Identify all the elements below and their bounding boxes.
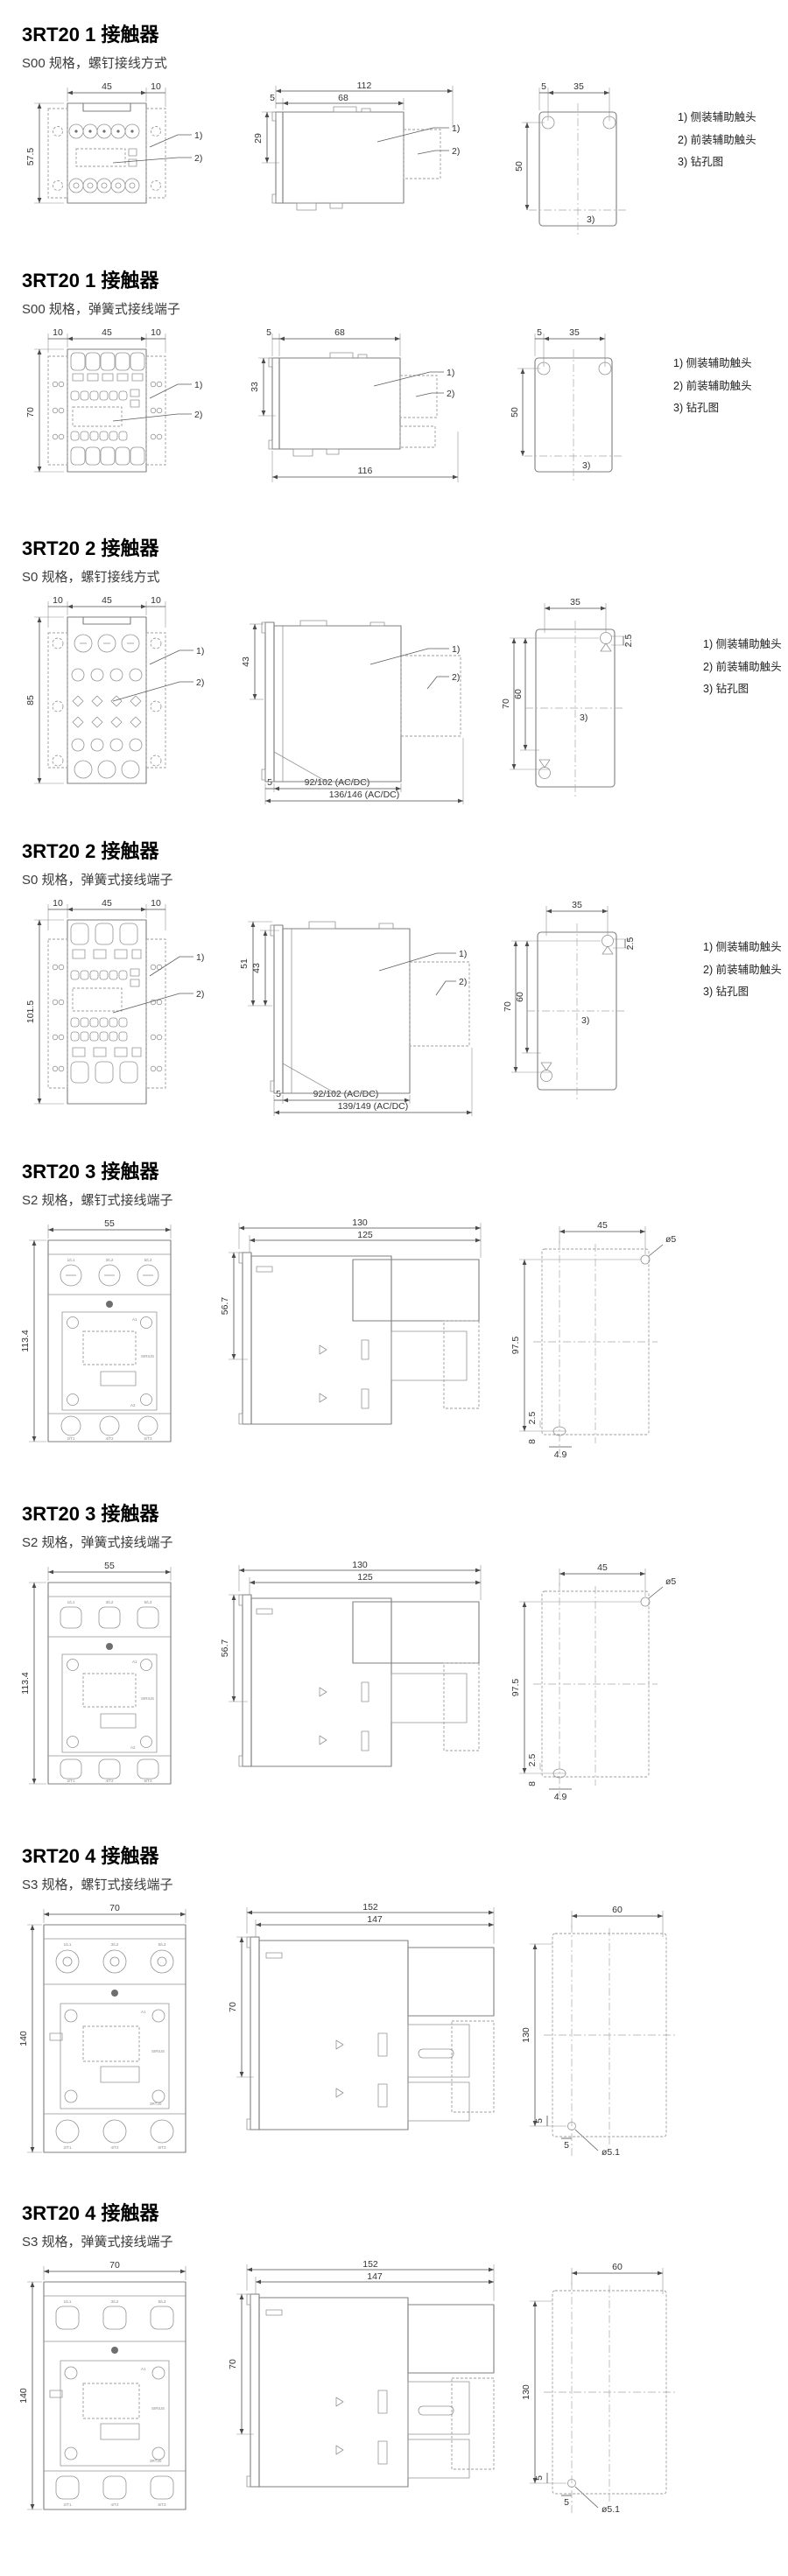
front-view-drawing: 10 45 10 85 1) <box>22 594 223 809</box>
terminal-label-5l3: 5/L3 <box>144 1258 152 1262</box>
front-dimensions: 45 10 57.5 <box>25 81 165 203</box>
front-body: 1/L1 3/L2 5/L3 A1 SIRIUS 3RT20 2/T1 4/T2… <box>44 2282 186 2509</box>
terminal-label-5l3: 5/L3 <box>158 2299 166 2304</box>
dim-drill-w: 45 <box>597 1562 608 1573</box>
front-body: 1/L1 3/L2 5/L3 A1 SIRIUS 3RT20 2/T1 4/T2… <box>44 1925 186 2152</box>
dim-side-h2: 43 <box>251 963 262 973</box>
dim-side-h: 70 <box>228 2002 238 2012</box>
drawings-row: 45 10 57.5 1) 2) <box>22 81 788 242</box>
dim-front-h: 140 <box>18 2031 29 2046</box>
drill-plate <box>544 2282 675 2513</box>
callout-1: 1) <box>452 644 460 655</box>
brand-label: SIRIUS <box>151 2406 165 2411</box>
dim-side-total: 112 <box>357 81 372 91</box>
terminal-label-3l2: 3/L2 <box>106 1258 114 1262</box>
section-title: 3RT20 4 接触器 <box>22 1841 788 1869</box>
front-view-drawing: 10 45 10 101.5 <box>22 897 223 1134</box>
terminal-label-2t1: 2/T1 <box>63 2502 72 2507</box>
terminal-label-3l2: 3/L2 <box>111 2299 119 2304</box>
dim-front-h: 113.4 <box>20 1330 31 1352</box>
brand-label: SIRIUS <box>151 2049 165 2053</box>
terminal-label-6t3: 6/T3 <box>158 2145 166 2150</box>
note-3: 3) 钻孔图 <box>673 397 752 420</box>
dim-drill-h: 50 <box>510 407 520 418</box>
side-view-drawing: 51 43 5 92/102 (AC/DC) 139/149 (AC/DC) <box>237 897 496 1132</box>
drill-dimensions: 35 2.5 70 60 <box>503 900 636 1072</box>
dim-drill-h2: 60 <box>515 992 525 1002</box>
dim-drill-w: 45 <box>597 1220 608 1231</box>
model-label: 3RT20 <box>150 2459 162 2463</box>
side-view-drawing: 43 5 92/102 (AC/DC) 136/146 (AC/DC) 1) <box>239 594 489 813</box>
terminal-label-a2: A2 <box>130 1745 136 1750</box>
legend-notes: 1) 侧装辅助触头 2) 前装辅助触头 3) 钻孔图 <box>703 634 782 701</box>
dim-side-h: 56.7 <box>220 1297 230 1316</box>
callout-1: 1) <box>459 949 467 959</box>
section-subtitle: S0 规格，螺钉接线方式 <box>22 567 788 586</box>
legend-notes: 1) 侧装辅助触头 2) 前装辅助触头 3) 钻孔图 <box>678 107 756 174</box>
dim-drill-h: 50 <box>514 161 524 172</box>
drill-plate <box>524 349 623 482</box>
terminal-label-3l2: 3/L2 <box>106 1600 114 1604</box>
callout-3: 3) <box>580 712 587 723</box>
side-callouts: 1) 2) <box>374 368 454 399</box>
dim-side-d2: 139/149 (AC/DC) <box>338 1101 409 1112</box>
drill-pattern-drawing: 60 130 5 5 ø5.1 <box>521 1902 722 2175</box>
callout-1: 1) <box>196 646 204 656</box>
front-body <box>48 920 165 1104</box>
drill-plate <box>527 923 627 1100</box>
section-3rt203-spring: 3RT20 3 接触器 S2 规格，弹簧式接线端子 55 113.4 1/L1 … <box>0 1485 788 1827</box>
terminal-label-1l1: 1/L1 <box>67 1600 75 1604</box>
drill-plate <box>544 1925 675 2156</box>
side-dimensions: 130 125 56.7 <box>220 1560 481 1702</box>
dim-side-body: 68 <box>334 327 345 338</box>
side-body <box>269 353 437 456</box>
drawings-row: 70 140 1/L1 3/L2 5/L3 A1 <box>22 1902 788 2175</box>
drill-pattern-drawing: 5 35 50 3) <box>513 81 662 242</box>
side-view-drawing: 130 125 56.7 <box>222 1218 493 1476</box>
drill-dimensions: 60 130 5 5 ø5.1 <box>521 1905 663 2158</box>
datasheet-page: 3RT20 1 接触器 S00 规格，螺钉接线方式 45 10 57.5 <box>0 0 788 2576</box>
dim-drill-o3: 4.9 <box>554 1792 567 1802</box>
dim-side-h1: 51 <box>239 958 250 969</box>
callout-1: 1) <box>452 123 460 134</box>
dim-side-body: 125 <box>357 1230 373 1240</box>
dim-side-off: 5 <box>276 1089 281 1099</box>
front-body: 1/L1 3/L2 5/L3 A1 SIRIUS A2 2/T1 4/T2 6/… <box>48 1240 171 1442</box>
callout-1: 1) <box>194 130 202 141</box>
dim-side-total: 130 <box>352 1560 368 1570</box>
legend-notes: 1) 侧装辅助触头 2) 前装辅助触头 3) 钻孔图 <box>703 937 782 1004</box>
dim-side-d1: 92/102 (AC/DC) <box>313 1089 379 1099</box>
dim-drill-hole: ø5.1 <box>602 2147 620 2158</box>
front-view-drawing: 10 45 10 70 1) <box>22 326 223 510</box>
terminal-label-a1: A1 <box>141 2010 146 2014</box>
dim-drill-w: 35 <box>573 81 584 92</box>
dim-front-w: 45 <box>102 898 112 909</box>
section-subtitle: S2 规格，螺钉式接线端子 <box>22 1190 788 1209</box>
terminal-label-1l1: 1/L1 <box>67 1258 75 1262</box>
section-title: 3RT20 2 接触器 <box>22 533 788 561</box>
side-dimensions: 152 147 70 <box>228 2259 494 2434</box>
drawings-row: 10 45 10 85 1) <box>22 594 788 813</box>
terminal-label-4t2: 4/T2 <box>105 1436 114 1441</box>
dim-front-h: 101.5 <box>25 1000 36 1023</box>
dim-front-wr: 10 <box>151 898 161 909</box>
note-1: 1) 侧装辅助触头 <box>673 353 752 376</box>
dim-front-wr: 10 <box>151 327 161 338</box>
note-1: 1) 侧装辅助触头 <box>703 634 782 656</box>
terminal-label-4t2: 4/T2 <box>110 2502 119 2507</box>
section-subtitle: S00 规格，螺钉接线方式 <box>22 53 788 72</box>
dim-side-body: 125 <box>357 1572 373 1583</box>
dim-front-wr: 10 <box>151 595 161 606</box>
dim-front-w: 55 <box>104 1218 115 1229</box>
callout-1: 1) <box>196 952 204 963</box>
section-subtitle: S3 规格，弹簧式接线端子 <box>22 2232 788 2250</box>
dim-drill-off: 5 <box>541 81 546 92</box>
drill-pattern-drawing: 5 35 50 3) <box>509 326 658 488</box>
terminal-label-4t2: 4/T2 <box>110 2145 119 2150</box>
note-2: 2) 前装辅助触头 <box>703 959 782 982</box>
dim-front-w: 45 <box>102 327 112 338</box>
section-title: 3RT20 1 接触器 <box>22 19 788 47</box>
section-3rt203-screw: 3RT20 3 接触器 S2 规格，螺钉式接线端子 55 113.4 1/L1 … <box>0 1142 788 1485</box>
dim-drill-o3: 4.9 <box>554 1449 567 1460</box>
side-view-drawing: 152 147 70 <box>231 1902 507 2175</box>
callout-2: 2) <box>452 672 460 683</box>
dim-drill-h: 130 <box>521 2384 531 2400</box>
section-subtitle: S2 规格，弹簧式接线端子 <box>22 1533 788 1551</box>
dim-drill-off: 5 <box>537 327 542 338</box>
dim-drill-w: 60 <box>612 2262 623 2272</box>
dim-drill-hole: ø5 <box>665 1234 676 1245</box>
drill-plate <box>533 1583 658 1796</box>
section-title: 3RT20 4 接触器 <box>22 2198 788 2226</box>
dim-drill-o2: 5 <box>564 2497 569 2508</box>
section-subtitle: S0 规格，弹簧式接线端子 <box>22 870 788 888</box>
drill-dimensions: 35 2.5 70 60 <box>501 597 634 769</box>
drill-pattern-drawing: 60 130 5 5 ø5.1 <box>521 2259 722 2532</box>
front-callouts: 1) 2) <box>113 646 204 701</box>
drill-plate <box>533 1240 658 1454</box>
drill-dimensions: 45 ø5 97.5 2.5 8 4.9 <box>510 1220 676 1460</box>
dim-side-total: 152 <box>362 2259 378 2270</box>
callout-1: 1) <box>194 380 202 390</box>
model-label: 3RT20 <box>150 2102 162 2106</box>
dim-side-d2: 136/146 (AC/DC) <box>329 790 400 800</box>
dim-front-w: 70 <box>109 1903 120 1913</box>
brand-label: SIRIUS <box>141 1696 154 1701</box>
dim-drill-o1: 5 <box>534 2475 545 2481</box>
drill-dimensions: 5 35 50 <box>510 327 605 456</box>
drawings-row: 10 45 10 101.5 <box>22 897 788 1134</box>
drill-plate <box>529 103 627 236</box>
dim-side-total: 152 <box>362 1902 378 1913</box>
drill-pattern-drawing: 45 ø5 97.5 2.5 8 4.9 <box>510 1560 716 1818</box>
front-body: 1/L1 3/L2 5/L3 A1 SIRIUS A2 2/T1 4/T2 6/… <box>48 1583 171 1784</box>
dim-side-total: 116 <box>358 466 373 476</box>
terminal-label-1l1: 1/L1 <box>64 1942 72 1947</box>
drill-plate <box>525 621 625 797</box>
callout-2: 2) <box>459 977 467 987</box>
section-subtitle: S00 规格，弹簧式接线端子 <box>22 299 788 318</box>
dim-drill-h: 97.5 <box>510 1337 521 1355</box>
dim-drill-o1: 2.5 <box>527 1412 538 1425</box>
dim-drill-o2: 5 <box>564 2140 569 2151</box>
front-view-drawing: 55 113.4 1/L1 3/L2 5/L3 A1 SIR <box>22 1218 197 1476</box>
note-1: 1) 侧装辅助触头 <box>703 937 782 959</box>
side-callouts: 1) 2) <box>377 123 460 157</box>
note-2: 2) 前装辅助触头 <box>703 656 782 679</box>
side-dimensions: 5 68 33 116 <box>250 327 458 482</box>
dim-drill-hole: ø5.1 <box>602 2504 620 2515</box>
dim-drill-off: 2.5 <box>625 937 636 951</box>
dim-drill-o1: 5 <box>534 2118 545 2123</box>
terminal-label-2t1: 2/T1 <box>67 1779 75 1783</box>
terminal-label-a1: A1 <box>132 1317 137 1322</box>
note-2: 2) 前装辅助触头 <box>673 376 752 398</box>
dim-side-total: 130 <box>352 1218 368 1228</box>
dim-side-body: 147 <box>367 2271 383 2282</box>
callout-2: 2) <box>447 389 454 399</box>
dim-side-h: 43 <box>241 656 251 667</box>
dim-front-h: 57.5 <box>25 148 36 166</box>
dim-drill-h1: 70 <box>501 698 511 709</box>
front-view-drawing: 45 10 57.5 1) 2) <box>22 81 223 242</box>
terminal-label-5l3: 5/L3 <box>158 1942 166 1947</box>
terminal-label-6t3: 6/T3 <box>158 2502 166 2507</box>
dim-drill-h1: 70 <box>503 1001 513 1012</box>
front-dimensions: 55 113.4 <box>20 1561 171 1784</box>
brand-label: SIRIUS <box>141 1354 154 1358</box>
dim-side-off: 5 <box>270 93 275 103</box>
callout-1: 1) <box>447 368 454 378</box>
dim-front-w: 70 <box>109 2260 120 2271</box>
side-body <box>239 1595 479 1766</box>
dim-drill-off: 2.5 <box>623 635 634 648</box>
callout-2: 2) <box>194 153 202 164</box>
terminal-label-a2: A2 <box>130 1403 136 1407</box>
terminal-label-2t1: 2/T1 <box>67 1436 75 1441</box>
dim-drill-o2: 8 <box>527 1439 538 1444</box>
dim-front-wr: 10 <box>151 81 161 92</box>
dim-drill-w: 35 <box>570 597 580 607</box>
callout-3: 3) <box>587 214 595 225</box>
drill-dimensions: 5 35 50 <box>514 81 609 210</box>
dim-front-h: 70 <box>25 407 36 418</box>
terminal-label-4t2: 4/T2 <box>105 1779 114 1783</box>
legend-notes: 1) 侧装辅助触头 2) 前装辅助触头 3) 钻孔图 <box>673 353 752 420</box>
dim-drill-h: 130 <box>521 2027 531 2043</box>
side-body <box>239 1253 479 1424</box>
dim-front-w: 45 <box>102 81 112 92</box>
drawings-row: 55 113.4 1/L1 3/L2 5/L3 A1 SIRIUS <box>22 1560 788 1818</box>
section-3rt201-spring: 3RT20 1 接触器 S00 规格，弹簧式接线端子 10 45 10 70 <box>0 251 788 519</box>
side-body <box>262 621 461 782</box>
drawings-row: 70 140 1/L1 3/L2 5/L3 A1 SIRIU <box>22 2259 788 2532</box>
terminal-label-6t3: 6/T3 <box>144 1779 152 1783</box>
drill-pattern-drawing: 35 2.5 70 60 3) <box>501 594 689 813</box>
terminal-label-2t1: 2/T1 <box>63 2145 72 2150</box>
terminal-label-1l1: 1/L1 <box>64 2299 72 2304</box>
dim-front-w: 55 <box>104 1561 115 1571</box>
side-body <box>247 1937 494 2130</box>
dim-front-wl: 10 <box>53 595 63 606</box>
section-title: 3RT20 3 接触器 <box>22 1156 788 1184</box>
side-view-drawing: 5 68 33 116 1) 2) <box>243 326 479 502</box>
dim-front-h: 113.4 <box>20 1672 31 1695</box>
section-subtitle: S3 规格，螺钉式接线端子 <box>22 1875 788 1893</box>
dim-side-h: 70 <box>228 2359 238 2369</box>
drill-dimensions: 60 130 5 5 ø5.1 <box>521 2262 663 2515</box>
front-dimensions: 55 113.4 <box>20 1218 171 1442</box>
front-body <box>48 617 165 783</box>
dim-drill-o1: 2.5 <box>527 1754 538 1767</box>
callout-2: 2) <box>194 410 202 420</box>
terminal-label-a1: A1 <box>141 2367 146 2371</box>
section-3rt202-spring: 3RT20 2 接触器 S0 规格，弹簧式接线端子 10 45 10 101.5 <box>0 822 788 1142</box>
side-callouts: 1) 2) <box>379 949 467 995</box>
side-view-drawing: 130 125 56.7 <box>222 1560 493 1818</box>
side-dimensions: 130 125 56.7 <box>220 1218 481 1359</box>
dim-side-off: 5 <box>267 777 272 788</box>
dim-drill-hole: ø5 <box>665 1576 676 1587</box>
side-dimensions: 152 147 70 <box>228 1902 494 2077</box>
front-callouts: 1) 2) <box>113 952 204 1013</box>
dim-drill-o2: 8 <box>527 1781 538 1786</box>
callout-2: 2) <box>196 677 204 688</box>
dim-drill-w: 35 <box>572 900 582 910</box>
dim-side-d1: 92/102 (AC/DC) <box>305 777 370 788</box>
side-view-drawing: 112 68 5 29 1) 2) <box>246 81 478 242</box>
callout-2: 2) <box>452 146 460 157</box>
section-title: 3RT20 2 接触器 <box>22 836 788 864</box>
drill-pattern-drawing: 45 ø5 97.5 2.5 8 4.9 <box>510 1218 716 1476</box>
side-view-drawing: 152 147 70 <box>231 2259 507 2532</box>
dim-front-h: 85 <box>25 695 36 705</box>
dim-front-wl: 10 <box>53 898 63 909</box>
front-dimensions: 10 45 10 85 <box>25 595 165 783</box>
section-3rt202-screw: 3RT20 2 接触器 S0 规格，螺钉接线方式 10 45 10 85 <box>0 519 788 822</box>
side-callouts: 1) 2) <box>370 644 460 689</box>
front-body <box>48 349 165 472</box>
front-body <box>48 103 165 203</box>
side-body <box>271 922 469 1093</box>
callout-3: 3) <box>582 460 590 471</box>
terminal-label-a1: A1 <box>132 1660 137 1664</box>
side-body <box>272 107 440 210</box>
section-title: 3RT20 3 接触器 <box>22 1499 788 1527</box>
dim-front-wl: 10 <box>53 327 63 338</box>
dim-front-w: 45 <box>102 595 112 606</box>
callout-2: 2) <box>196 989 204 1000</box>
dim-drill-h: 97.5 <box>510 1679 521 1697</box>
note-3: 3) 钻孔图 <box>703 678 782 701</box>
callout-3: 3) <box>581 1015 589 1026</box>
terminal-label-3l2: 3/L2 <box>111 1942 119 1947</box>
drill-pattern-drawing: 35 2.5 70 60 3) <box>503 897 691 1116</box>
dim-side-body: 68 <box>338 93 348 103</box>
section-3rt201-screw: 3RT20 1 接触器 S00 规格，螺钉接线方式 45 10 57.5 <box>0 5 788 251</box>
drill-dimensions: 45 ø5 97.5 2.5 8 4.9 <box>510 1562 676 1802</box>
side-body <box>247 2294 494 2487</box>
dim-side-h: 29 <box>253 133 264 144</box>
section-3rt204-screw: 3RT20 4 接触器 S3 规格，螺钉式接线端子 70 140 1/L1 3/… <box>0 1827 788 2184</box>
note-1: 1) 侧装辅助触头 <box>678 107 756 130</box>
drawings-row: 10 45 10 70 1) <box>22 326 788 510</box>
note-3: 3) 钻孔图 <box>678 151 756 174</box>
dim-drill-w: 35 <box>569 327 580 338</box>
terminal-label-5l3: 5/L3 <box>144 1600 152 1604</box>
terminal-label-6t3: 6/T3 <box>144 1436 152 1441</box>
dim-side-body: 147 <box>367 1914 383 1925</box>
front-view-drawing: 70 140 1/L1 3/L2 5/L3 A1 <box>22 1902 210 2175</box>
dim-front-h: 140 <box>18 2388 29 2404</box>
section-3rt204-spring: 3RT20 4 接触器 S3 规格，弹簧式接线端子 70 140 1/L1 3/… <box>0 2184 788 2541</box>
drawings-row: 55 113.4 1/L1 3/L2 5/L3 A1 SIR <box>22 1218 788 1476</box>
front-view-drawing: 55 113.4 1/L1 3/L2 5/L3 A1 SIRIUS <box>22 1560 197 1818</box>
front-view-drawing: 70 140 1/L1 3/L2 5/L3 A1 SIRIU <box>22 2259 210 2532</box>
dim-side-off: 5 <box>266 327 271 338</box>
dim-side-h: 33 <box>250 382 260 392</box>
dim-drill-h2: 60 <box>513 689 524 699</box>
dim-drill-w: 60 <box>612 1905 623 1915</box>
note-2: 2) 前装辅助触头 <box>678 130 756 152</box>
dim-side-h: 56.7 <box>220 1639 230 1658</box>
section-title: 3RT20 1 接触器 <box>22 265 788 293</box>
note-3: 3) 钻孔图 <box>703 981 782 1004</box>
